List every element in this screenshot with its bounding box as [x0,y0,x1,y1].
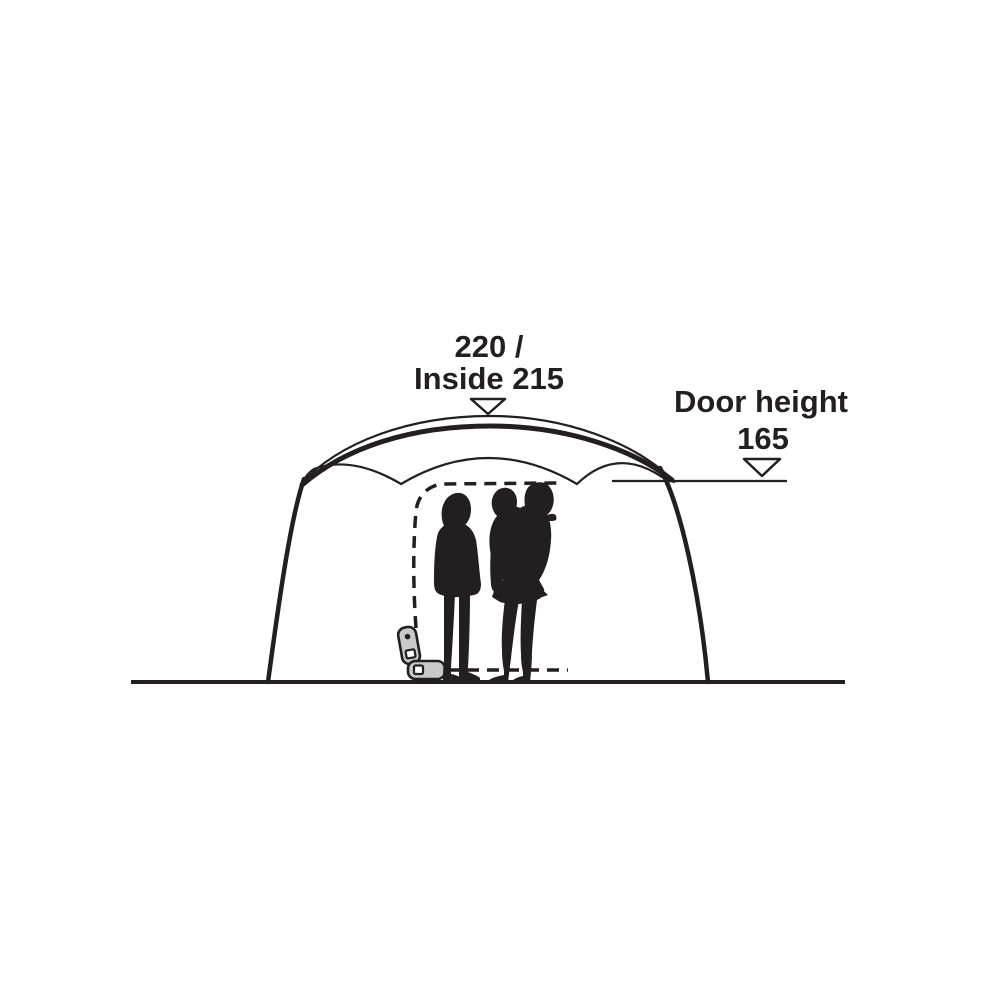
tent-drawing [0,0,1000,1000]
zipper-slider-icon [408,661,445,679]
tent-right-wall [660,468,708,682]
tent-dimension-diagram: 220 / Inside 215 Door height 165 [0,0,1000,1000]
peak-height-line2: Inside 215 [414,363,564,395]
door-height-value: 165 [737,423,789,455]
people-silhouette [434,482,556,683]
door-height-label: Door height [674,386,848,418]
peak-down-arrow-icon [471,399,505,414]
door-down-arrow-icon [744,459,780,476]
zipper-pull-icon [397,626,421,666]
peak-height-annotation: 220 / Inside 215 [414,331,564,395]
peak-height-line1: 220 / [414,331,564,363]
tent-left-wall [268,479,304,682]
tent-awning-main-line [302,426,672,485]
